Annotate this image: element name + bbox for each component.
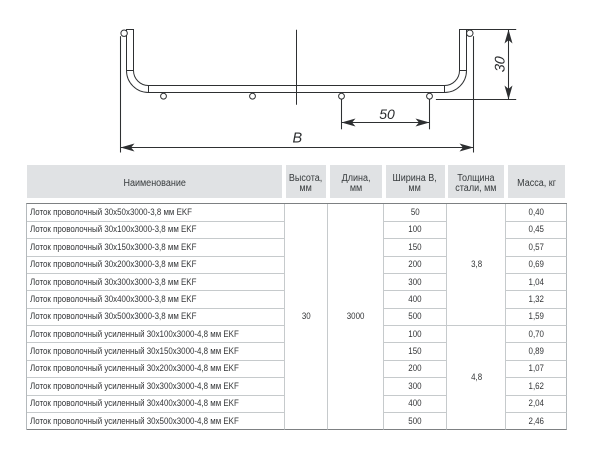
svg-text:50: 50 (379, 106, 395, 122)
svg-text:B: B (292, 131, 302, 147)
svg-text:30: 30 (491, 55, 507, 72)
